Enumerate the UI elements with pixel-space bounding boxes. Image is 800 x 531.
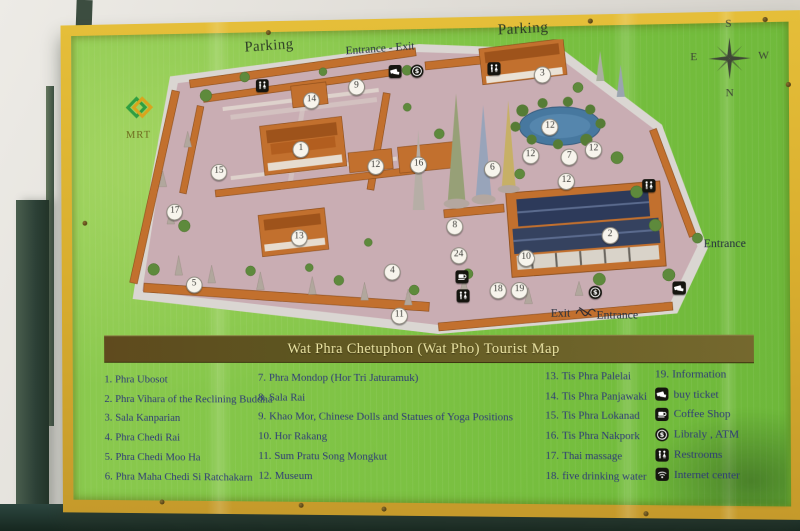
map-marker-5: 5 [186,276,203,293]
rivet [160,500,165,505]
rivet [299,503,304,508]
restroom-icon [487,62,500,75]
legend-column-1: 1.Phra Ubosot2.Phra Vihara of the Reclin… [104,373,273,491]
map-marker-15: 15 [211,164,228,181]
parking-label-right: Parking [498,20,549,40]
svg-text:$: $ [660,432,665,439]
legend-item-number: 16. [545,430,559,442]
legend-item-label: Thai massage [562,450,622,463]
legend-item: Coffee Shop [655,407,739,421]
legend-item-label: Sala Kanparian [115,412,180,424]
legend-item-number: 11. [258,450,271,462]
legend-item: Restrooms [655,448,739,463]
exit-label-bottom: Exit [551,308,570,320]
legend-item-label: Phra Mondop (Hor Tri Jaturamuk) [269,372,419,384]
legend-item-number: 15. [545,410,559,422]
legend-item-number: 3. [104,412,112,424]
ticket-icon [655,388,668,401]
map-marker-19: 19 [511,282,528,299]
legend-item: Internet center [655,468,739,483]
legend-item-label: Tis Phra Nakpork [562,430,640,443]
legend-item: 16.Tis Phra Nakpork [545,429,647,443]
legend-item: $Libraly , ATM [655,427,739,441]
rivet [786,82,791,87]
map-marker-4: 4 [384,264,401,281]
legend-item-number: 2. [104,393,112,405]
legend-item-label: Libraly , ATM [674,428,739,441]
mrt-logo-icon [117,92,159,122]
atm-icon: $ [589,286,602,299]
compass-rose: S E W N [688,17,771,100]
legend-item-number: 12. [258,470,271,482]
rivet [382,507,387,512]
map-marker-11: 11 [391,308,408,325]
map-marker-17: 17 [167,204,183,221]
legend-item: 2.Phra Vihara of the Reclining Buddha [104,392,272,406]
compass-letter-top: S [725,18,731,30]
legend-item: 7.Phra Mondop (Hor Tri Jaturamuk) [258,371,513,385]
mrt-logo: MRT [116,92,160,141]
legend-item: 19.Information [655,367,739,381]
map-marker-18: 18 [489,282,506,299]
restroom-icon [256,79,269,92]
legend-item: 13.Tis Phra Palelai [545,369,647,383]
restroom-icon [457,289,470,302]
legend-item-label: Phra Chedi Rai [115,432,180,444]
rivet [266,30,271,35]
rivet [643,511,648,516]
map-marker-2: 2 [601,227,618,244]
map-marker-13: 13 [291,229,308,246]
legend-item-number: 14. [545,390,559,402]
legend-item-label: Hor Rakang [275,431,328,443]
compass-letter-right: W [758,50,769,62]
legend-item-label: Phra Vihara of the Reclining Buddha [115,393,272,405]
map-marker-16: 16 [410,156,427,173]
tourist-map-signboard: 123456789101112121212121314151617181924$… [61,10,800,520]
legend-column-4: 19.Informationbuy ticketCoffee Shop$Libr… [655,367,740,488]
coffee-icon [655,408,668,421]
legend-item-label: Coffee Shop [674,408,731,420]
title-banner: Wat Phra Chetuphon (Wat Pho) Tourist Map [104,335,754,364]
mrt-label: MRT [116,129,160,141]
map-marker-12: 12 [541,119,558,136]
legend-item-label: Phra Ubosot [115,373,168,385]
legend-item-number: 17. [545,450,559,462]
legend-item: 12.Museum [258,469,513,485]
legend-item-number: 8. [258,391,266,403]
wifi-icon [655,468,668,481]
legend-item: 18.five drinking water [546,469,648,484]
legend-item-number: 13. [545,370,559,382]
legend-item-label: Phra Maha Chedi Si Ratchakarn [116,471,253,484]
map-marker-12: 12 [367,158,384,175]
legend-item: 14.Tis Phra Panjawaki [545,389,647,403]
map-canvas: 123456789101112121212121314151617181924$… [114,36,723,337]
legend-item-number: 4. [105,432,113,444]
legend-item-label: Restrooms [674,449,723,462]
compass-star-icon [707,36,753,82]
legend-item-label: Information [672,368,726,380]
svg-text:$: $ [593,289,598,296]
legend-item-number: 1. [104,373,112,385]
map-marker-12: 12 [585,141,602,158]
map-marker-7: 7 [561,149,578,166]
legend-item-label: Tis Phra Panjawaki [562,390,647,402]
atm-icon: $ [655,428,668,441]
legend-item: 1.Phra Ubosot [104,373,272,387]
legend-item-number: 5. [105,451,113,463]
legend-item-label: Khao Mor, Chinese Dolls and Statues of Y… [269,411,513,424]
legend-item-number: 6. [105,470,113,482]
legend-item-label: Sala Rai [269,391,305,403]
compass-letter-bottom: N [726,87,734,99]
legend-item-number: 18. [546,470,560,482]
legend-item-label: Tis Phra Lokanad [562,410,640,422]
legend-item-label: Phra Chedi Moo Ha [115,451,200,463]
legend-item: 17.Thai massage [545,449,647,464]
legend-item-number: 9. [258,411,266,423]
legend-column-2: 7.Phra Mondop (Hor Tri Jaturamuk)8.Sala … [258,371,514,491]
map-marker-24: 24 [450,247,467,264]
map-marker-8: 8 [446,218,463,235]
legend-item-label: Internet center [674,469,740,482]
map-marker-12: 12 [522,147,539,164]
legend-item: 15.Tis Phra Lokanad [545,409,647,423]
legend-item-number: 10. [258,430,271,442]
rivet [588,19,593,24]
entrance-label-bottom: Entrance [596,309,638,321]
handwritten-scribble [575,306,597,318]
map-illustration [114,36,723,337]
restroom-icon [642,179,655,192]
legend-item: 10.Hor Rakang [258,430,513,445]
rivet [82,221,87,226]
legend-item-label: Museum [275,470,313,482]
legend-item: 9.Khao Mor, Chinese Dolls and Statues of… [258,410,513,425]
legend-column-3: 13.Tis Phra Palelai14.Tis Phra Panjawaki… [545,369,648,490]
map-marker-10: 10 [517,250,534,267]
legend-item: 8.Sala Rai [258,390,513,405]
restroom-icon [655,448,668,461]
atm-icon: $ [410,64,423,77]
legend-item-number: 19. [655,368,669,380]
legend-item: 5.Phra Chedi Moo Ha [105,450,273,465]
entrance-label-right: Entrance [704,238,746,251]
legend-item: buy ticket [655,387,739,401]
parking-label-left: Parking [244,36,294,56]
map-marker-12: 12 [558,173,575,190]
legend-item-label: Sum Pratu Song Mongkut [274,450,387,463]
ticket-icon [389,65,402,78]
legend-item-label: five drinking water [562,470,646,483]
legend-item: 4.Phra Chedi Rai [105,431,273,446]
legend-item-label: Tis Phra Palelai [562,370,631,382]
coffee-icon [455,270,468,283]
compass-letter-left: E [690,51,697,63]
legend-item: 11.Sum Pratu Song Mongkut [258,449,513,464]
legend-item: 6.Phra Maha Chedi Si Ratchakarn [105,470,273,485]
map-marker-6: 6 [484,161,501,178]
legend-item: 3.Sala Kanparian [104,411,272,425]
sign-title: Wat Phra Chetuphon (Wat Pho) Tourist Map [287,340,559,357]
ticket-icon [672,281,685,294]
signpost-left [16,200,49,531]
map-marker-1: 1 [293,141,310,158]
svg-text:$: $ [415,68,419,75]
legend-item-number: 7. [258,372,266,384]
legend-item-label: buy ticket [674,388,719,400]
